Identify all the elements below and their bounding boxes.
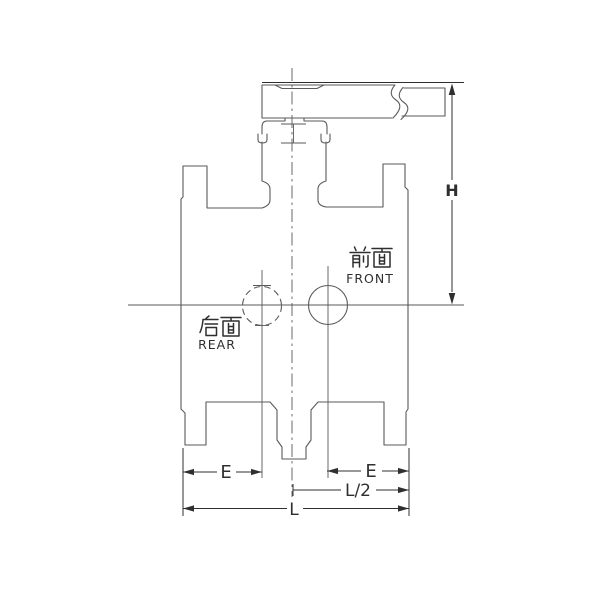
front-label-en: FRONT <box>346 271 394 286</box>
h-arrow-up-icon <box>449 84 456 96</box>
h-arrow-down-icon <box>449 293 456 305</box>
rear-label: REAR <box>198 316 241 352</box>
handle-bar <box>262 85 394 118</box>
stem-section-mark <box>281 124 306 143</box>
dimension-e-right: E <box>327 461 409 482</box>
centerlines <box>128 68 464 497</box>
handle <box>262 85 445 120</box>
l-arrow-left-icon <box>183 505 194 511</box>
e-left-arrow-left-icon <box>183 469 194 475</box>
neck-left-side <box>262 142 270 208</box>
e-left-arrow-right-icon <box>251 469 262 475</box>
dimension-l-half: L/2 <box>293 481 409 501</box>
gland-plate-left <box>262 118 285 134</box>
rear-label-en: REAR <box>198 337 236 352</box>
e-right-dim-label: E <box>365 461 376 482</box>
neck-right-side <box>318 142 326 207</box>
rear-label-hanzi <box>200 316 241 336</box>
h-dim-label: H <box>445 181 458 200</box>
valve-body <box>181 142 408 459</box>
pad-slot-left <box>258 134 267 143</box>
e-right-arrow-right-icon <box>398 468 409 474</box>
e-left-dim-label: E <box>220 462 231 483</box>
e-right-arrow-left-icon <box>327 468 338 474</box>
l-half-arrow-right-icon <box>398 487 409 493</box>
stem-gland <box>258 118 330 143</box>
handle-break-line-1 <box>391 85 400 118</box>
l-arrow-right-icon <box>398 505 409 511</box>
valve-technical-drawing: H E E L/2 L <box>0 0 600 600</box>
gland-plate-right <box>304 118 327 134</box>
front-label: FRONT <box>346 247 394 286</box>
handle-break-line-2 <box>399 88 408 120</box>
handle-end-segment <box>402 88 445 116</box>
body-flange-outline <box>181 164 408 459</box>
l-dim-label: L <box>289 500 299 520</box>
dimension-e-left: E <box>183 462 262 483</box>
ports <box>243 286 348 326</box>
drawing-canvas: H E E L/2 L <box>0 0 600 600</box>
dimension-l: L <box>183 500 409 520</box>
front-label-hanzi <box>350 247 392 267</box>
pad-slot-right <box>321 134 330 143</box>
l-half-dim-label: L/2 <box>345 481 371 501</box>
